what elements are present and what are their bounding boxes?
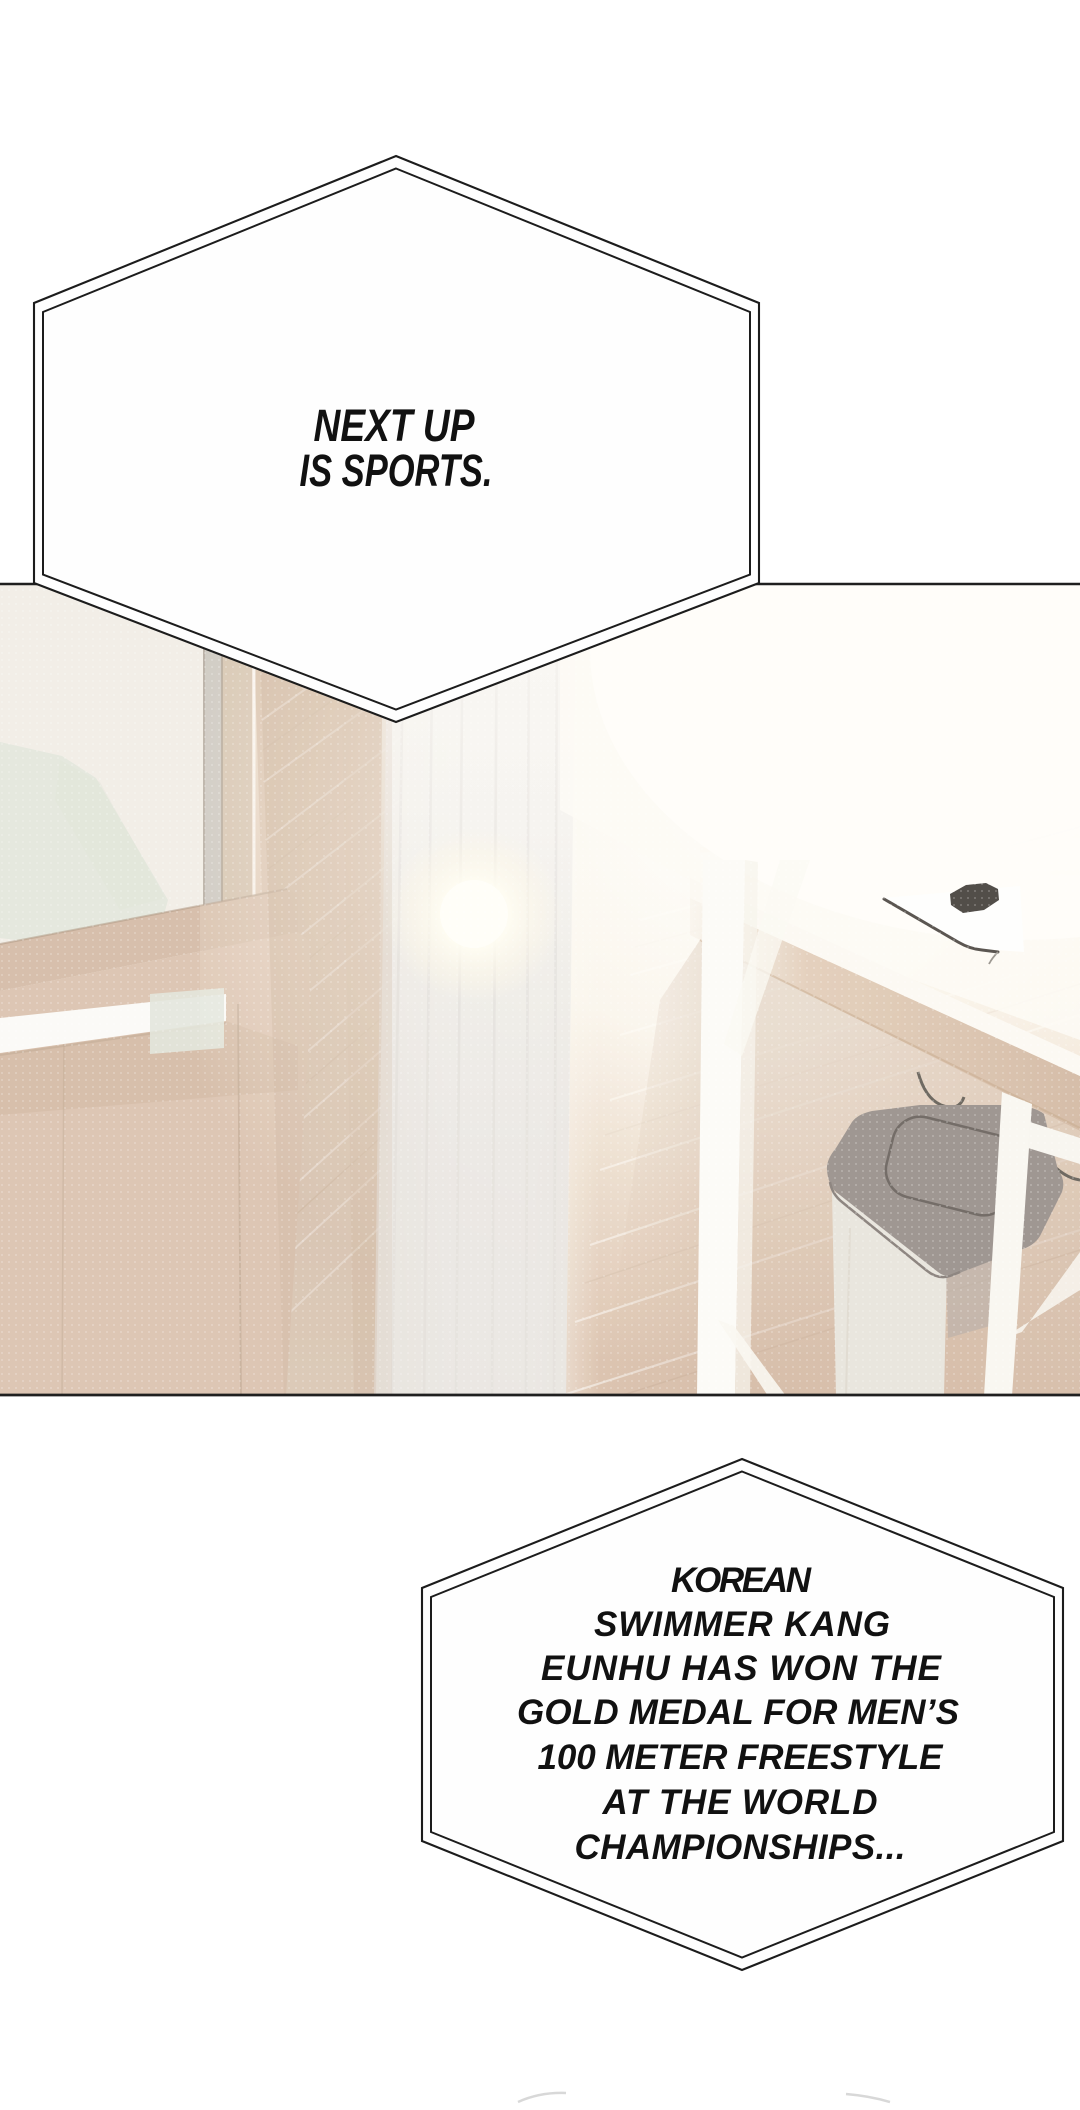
svg-text:SWIMMER KANG: SWIMMER KANG: [594, 1605, 890, 1644]
svg-text:NEXT UP: NEXT UP: [314, 400, 476, 451]
svg-text:AT THE WORLD: AT THE WORLD: [602, 1783, 878, 1822]
svg-text:EUNHU HAS WON THE: EUNHU HAS WON THE: [541, 1649, 943, 1688]
svg-text:100 METER FREESTYLE: 100 METER FREESTYLE: [538, 1738, 945, 1777]
svg-text:KOREAN: KOREAN: [671, 1561, 812, 1600]
svg-text:GOLD MEDAL FOR MEN’S: GOLD MEDAL FOR MEN’S: [517, 1693, 959, 1732]
svg-text:CHAMPIONSHIPS...: CHAMPIONSHIPS...: [575, 1828, 906, 1867]
svg-text:IS SPORTS.: IS SPORTS.: [300, 445, 493, 496]
